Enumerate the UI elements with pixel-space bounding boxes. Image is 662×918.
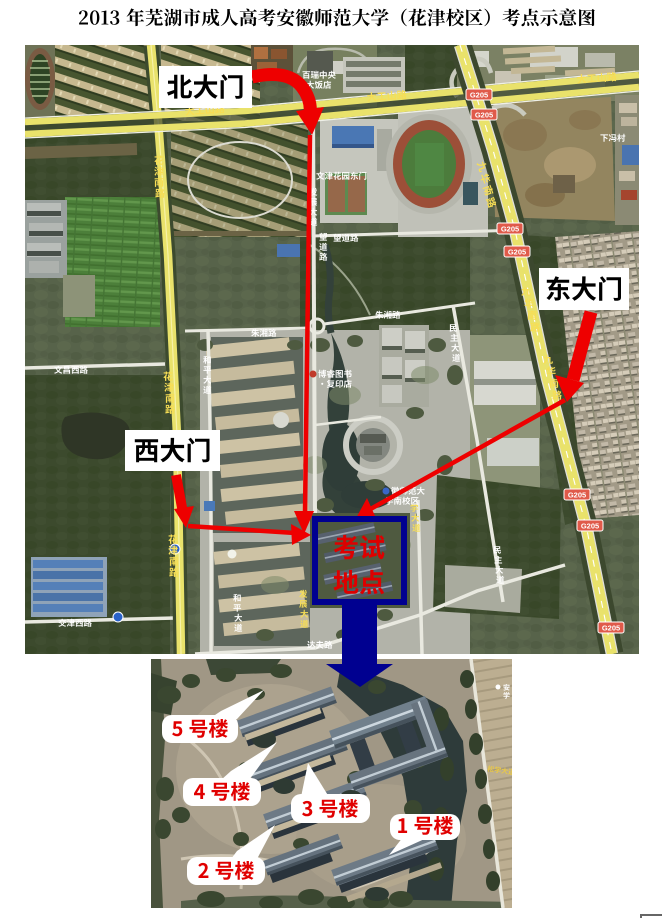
svg-text:G205: G205 (470, 91, 488, 100)
svg-text:G205: G205 (508, 248, 526, 257)
svg-text:G205: G205 (501, 225, 519, 234)
svg-text:G205: G205 (475, 111, 493, 120)
svg-text:G205: G205 (602, 624, 620, 633)
svg-text:G205: G205 (581, 522, 599, 531)
svg-text:G205: G205 (568, 491, 586, 500)
